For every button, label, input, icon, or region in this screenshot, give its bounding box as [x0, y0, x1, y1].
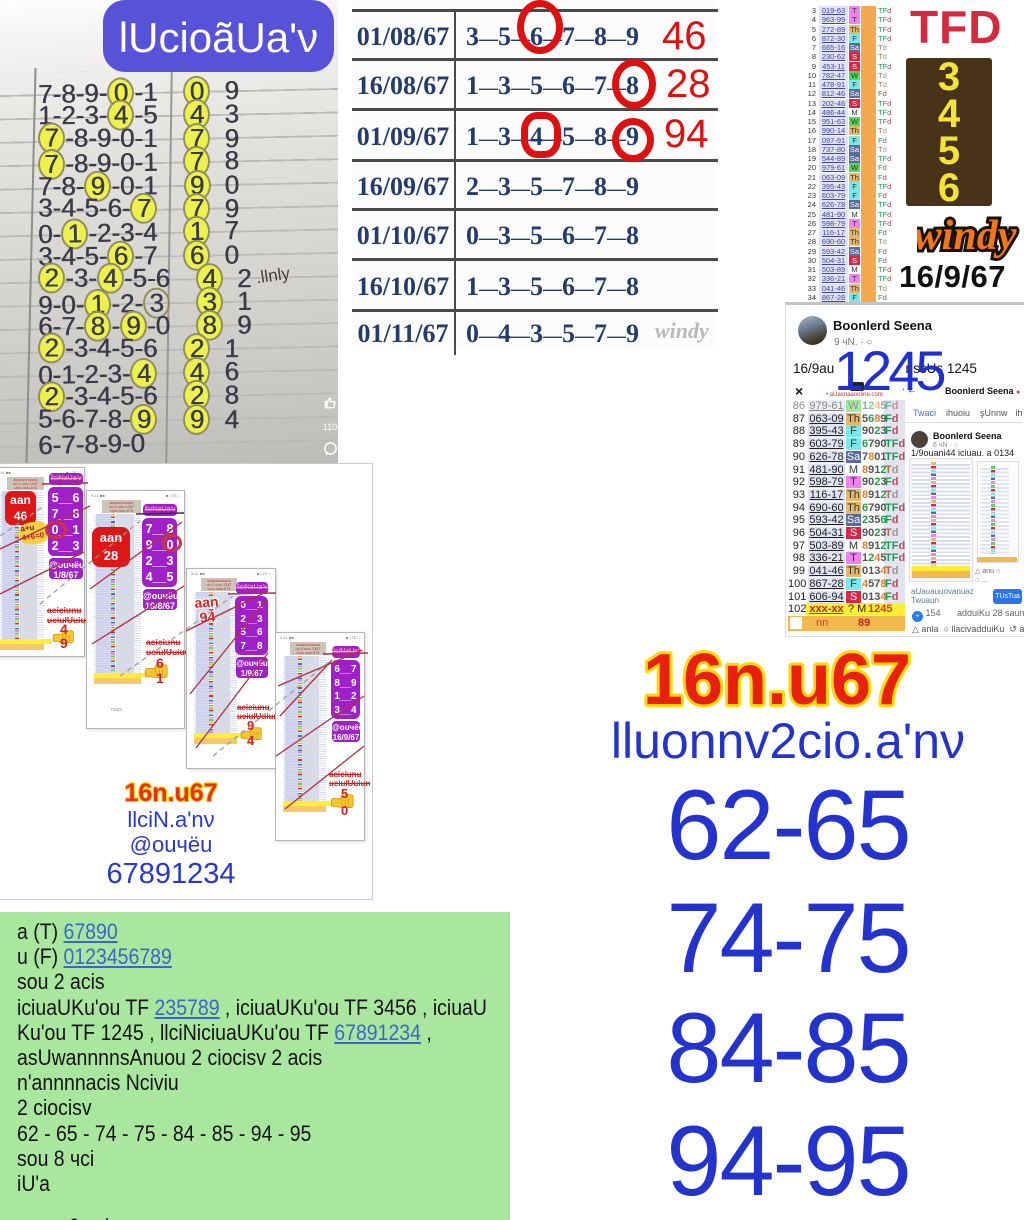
- svg-text:16n.u67: 16n.u67: [124, 779, 217, 807]
- svg-text:windy: windy: [917, 213, 1017, 259]
- svg-text:16n.u67: 16n.u67: [643, 640, 911, 720]
